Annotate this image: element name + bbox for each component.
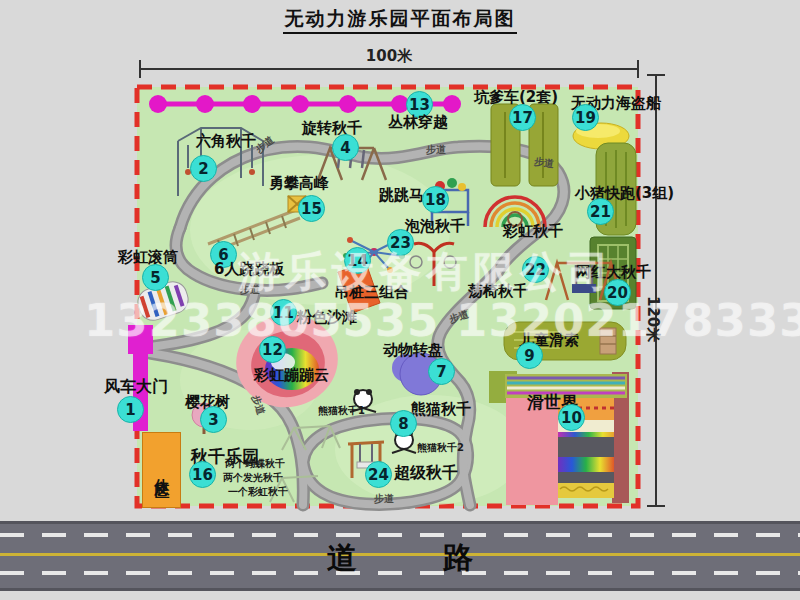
- label-rainbow-swing: 彩虹秋千: [503, 223, 563, 240]
- badge-slide-world: 10: [558, 404, 585, 431]
- path-marker: 步道: [533, 155, 555, 172]
- screenshot-root: 无动力游乐园平面布局图 100米 120米: [0, 0, 800, 600]
- label-jungle-crossing: 丛林穿越: [388, 114, 448, 131]
- rest-area: 休息区: [142, 432, 181, 508]
- label-panda-swing-1: 熊猫秋千1: [318, 404, 365, 418]
- badge-super-swing: 24: [365, 461, 392, 488]
- badge-pink-beach: 11: [270, 299, 297, 326]
- label-six-person-seesaw: 6人跷跷板: [214, 261, 284, 278]
- label-piggy-run: 小猪快跑(3组): [575, 185, 674, 202]
- path-marker: 步道: [374, 492, 394, 506]
- badge-kengdie-car: 17: [509, 104, 536, 131]
- road-dash-line-top: [0, 533, 800, 537]
- label-rainbow-roller: 彩虹滚筒: [118, 249, 178, 266]
- badge-rainbow-roller: 5: [142, 264, 169, 291]
- path-marker: 步道: [240, 283, 260, 297]
- label-windmill-gate: 风车大门: [104, 378, 168, 396]
- label-bubble-swing: 泡泡秋千: [405, 218, 465, 235]
- label-swing-chair: 荡椅秋千: [468, 283, 528, 300]
- label-kengdie-car: 坑爹车(2套): [474, 89, 558, 106]
- rest-area-label: 休息区: [152, 466, 171, 475]
- badge-swing-park: 16: [189, 461, 216, 488]
- badge-big-swing: 20: [604, 279, 631, 306]
- label-rainbow-bounce-cloud: 彩虹蹦蹦云: [254, 367, 329, 384]
- label-super-swing: 超级秋千: [394, 464, 458, 482]
- road-label: 道 路: [0, 538, 800, 579]
- badge-rainbow-bounce-cloud: 12: [259, 336, 286, 363]
- badge-rotating-swing: 4: [332, 134, 359, 161]
- badge-pirate-ship: 19: [572, 104, 599, 131]
- label-panda-swing: 熊猫秋千: [411, 401, 471, 418]
- label-big-swing: 网红大秋千: [576, 264, 651, 281]
- badge-hanging-post-combo: 14: [344, 247, 371, 274]
- badge-panda-swing: 8: [390, 410, 417, 437]
- label-panda-swing-2: 熊猫秋千2: [417, 441, 464, 455]
- label-swing-note-2: 两个发光秋千: [223, 471, 283, 485]
- label-hanging-post-combo: 吊桩三组合: [334, 284, 409, 301]
- badge-kids-zipline: 9: [516, 342, 543, 369]
- label-animal-carousel: 动物转盘: [383, 342, 443, 359]
- label-swing-note-3: 一个彩虹秋千: [228, 485, 288, 499]
- badge-hexagon-swing: 2: [190, 155, 217, 182]
- label-rotating-swing: 旋转秋千: [302, 120, 362, 137]
- badge-windmill-gate: 1: [117, 396, 144, 423]
- badge-swing-chair: 22: [522, 256, 549, 283]
- label-hexagon-swing: 六角秋千: [196, 133, 256, 150]
- badge-piggy-run: 21: [587, 198, 614, 225]
- badge-cherry-tree: 3: [200, 406, 227, 433]
- road: 道 路: [0, 521, 800, 591]
- label-jumping-horse: 跳跳马: [379, 187, 424, 204]
- badge-bubble-swing: 23: [387, 229, 414, 256]
- badge-peak-climbing: 15: [298, 195, 325, 222]
- path-marker: 步道: [426, 143, 446, 157]
- badge-jumping-horse: 18: [422, 186, 449, 213]
- badge-animal-carousel: 7: [428, 358, 455, 385]
- label-swing-note-1: 两个蝴蝶秋千: [225, 457, 285, 471]
- label-peak-climbing: 勇攀高峰: [269, 175, 329, 192]
- label-pink-beach: 粉色沙滩: [297, 309, 357, 326]
